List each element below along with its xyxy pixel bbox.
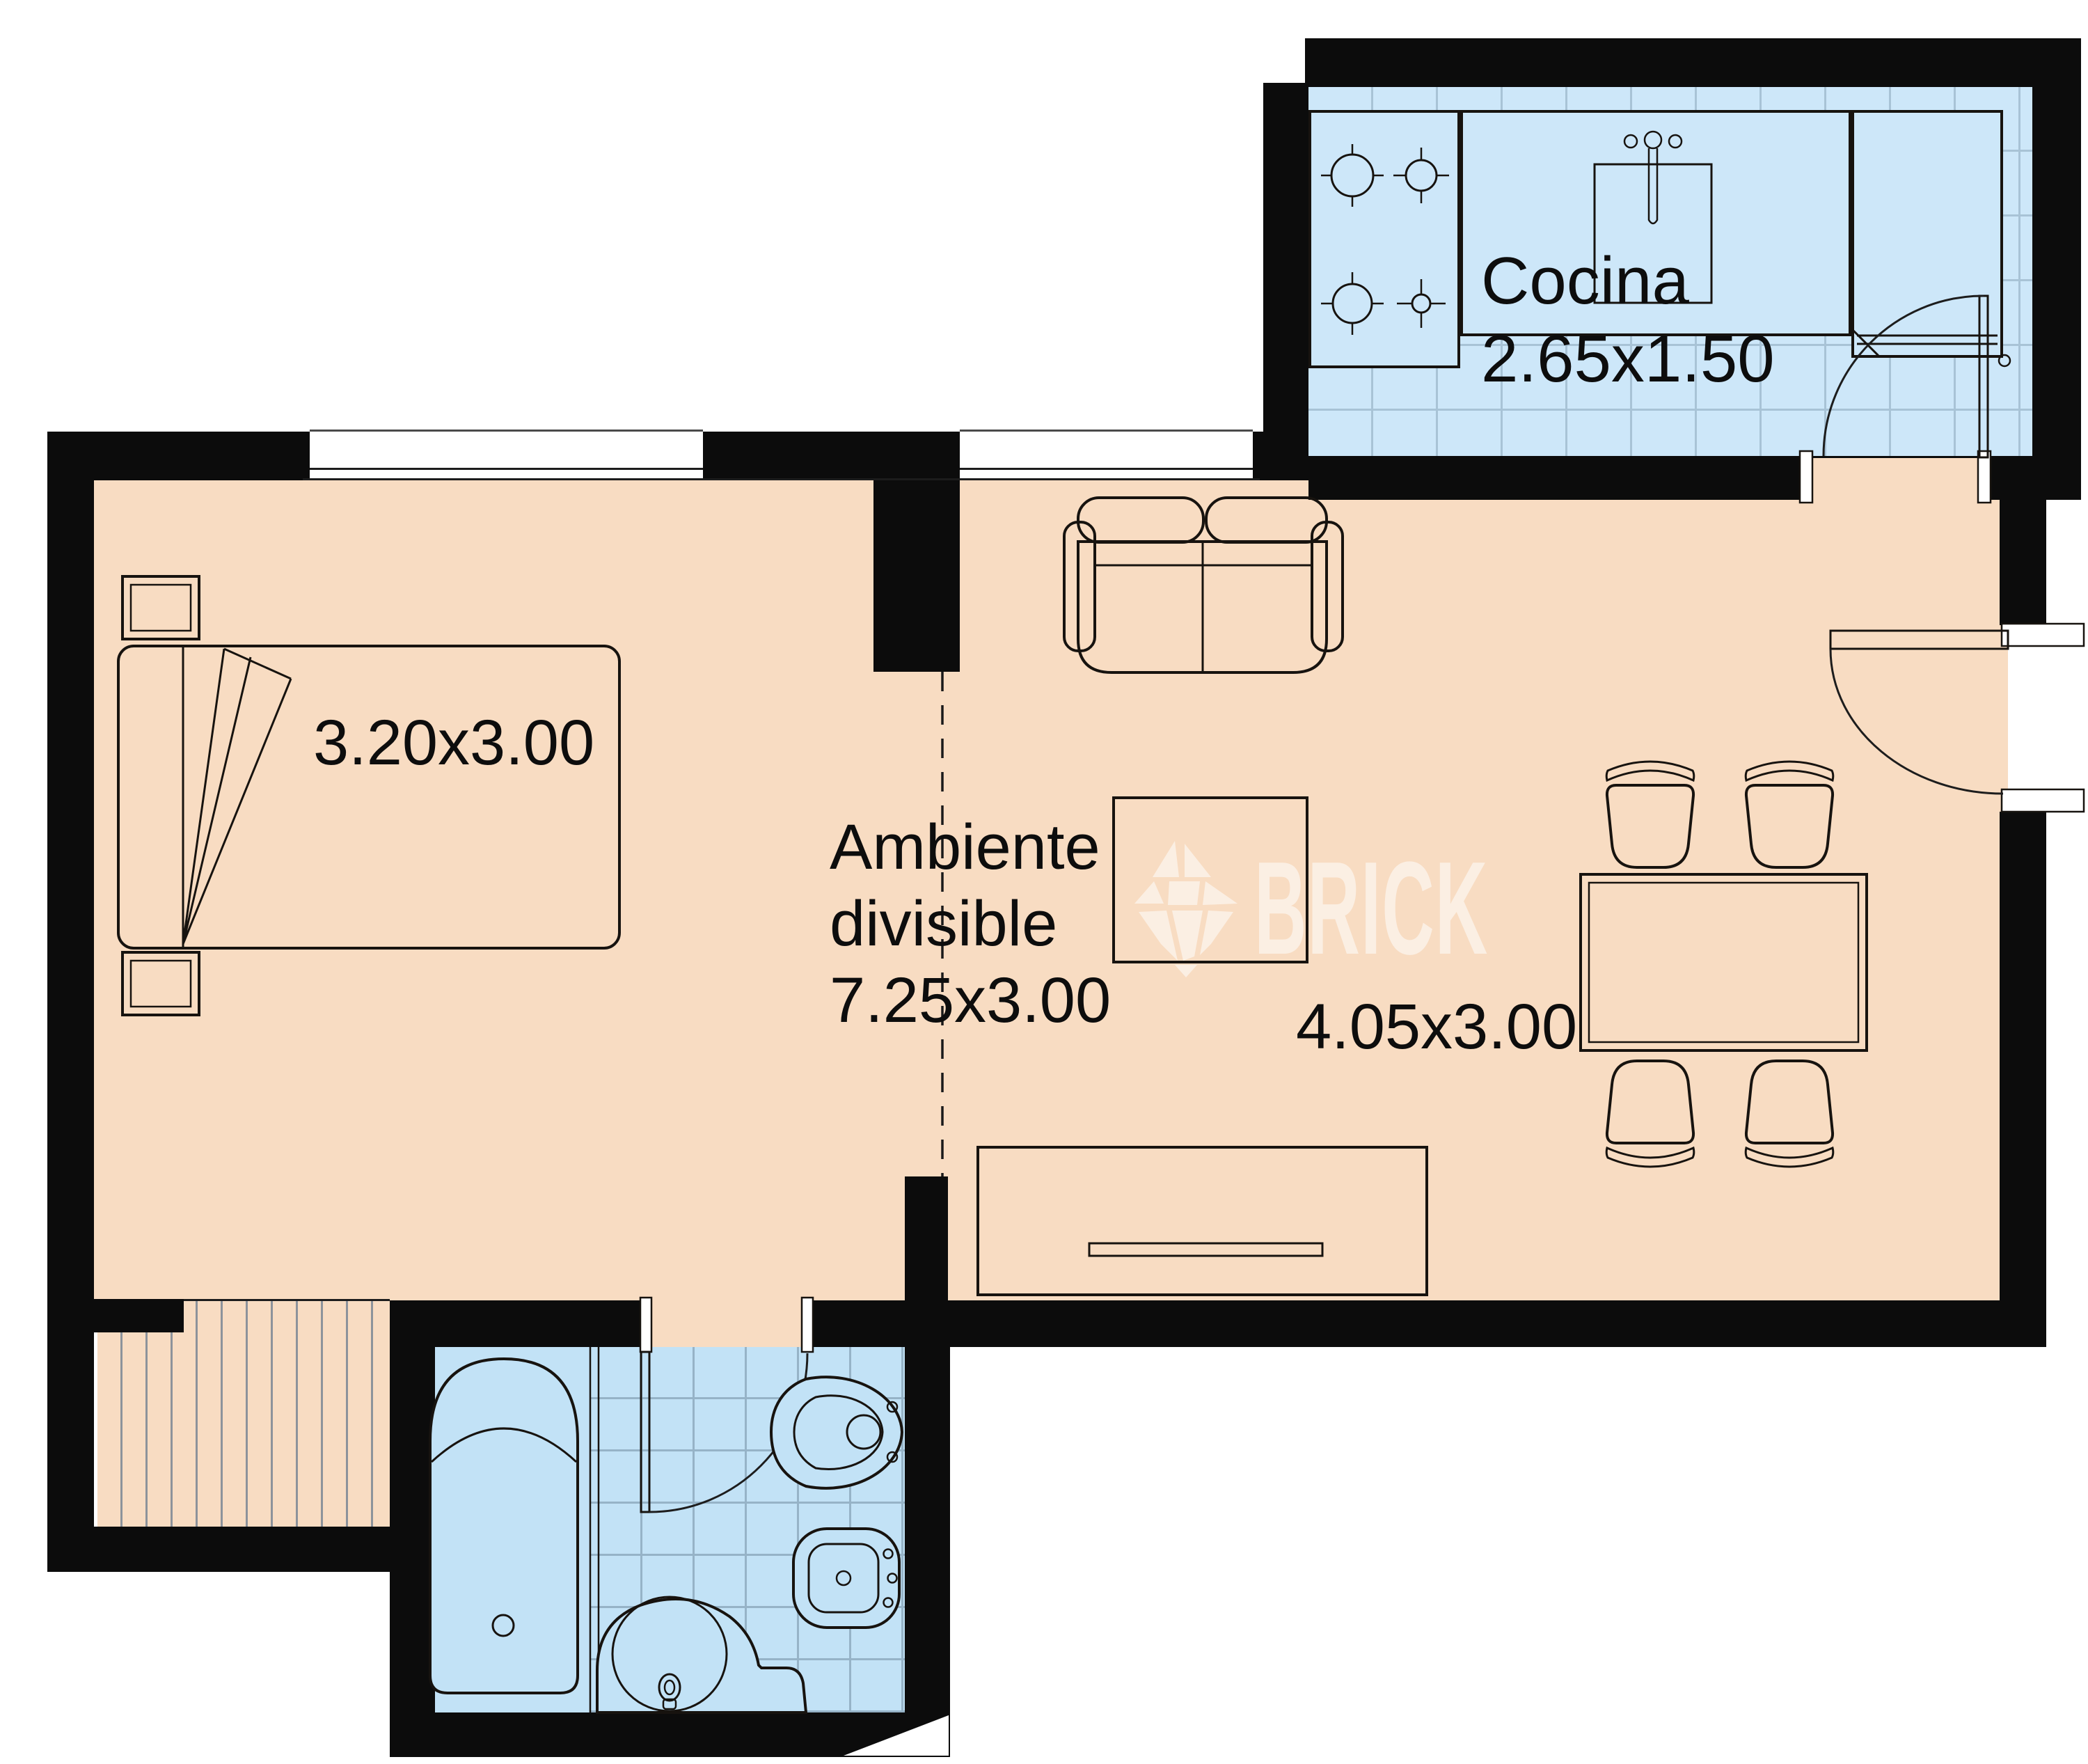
floor-plan: BRICK xyxy=(0,0,2088,1764)
wall-kitchen-left xyxy=(1263,38,1308,456)
room-label-kitchen: Cocina 2.65x1.50 xyxy=(1481,242,1775,398)
kitchen-dimensions: 2.65x1.50 xyxy=(1481,320,1775,398)
wall-stub-divider xyxy=(905,1176,948,1300)
wall-balcony-bottom xyxy=(47,1527,435,1572)
wall-pier-bedroom-living xyxy=(873,480,960,672)
room-label-living: 4.05x3.00 xyxy=(1296,989,1577,1065)
wall-right-upper xyxy=(2000,480,2046,625)
room-label-ambiente: Ambiente divisible 7.25x3.00 xyxy=(830,809,1111,1039)
ambiente-line-2: divisible xyxy=(830,885,1111,962)
wall-top-middle-pier xyxy=(703,432,960,480)
bathroom-door-floor xyxy=(647,1300,804,1347)
wall-notch xyxy=(1263,38,1305,83)
wall-bathroom-bottom xyxy=(390,1712,950,1757)
wall-bottom-main xyxy=(390,1300,2046,1347)
brick-gem-icon xyxy=(1133,840,1239,977)
floor-bathroom xyxy=(590,1347,905,1714)
wall-top-left xyxy=(47,432,310,480)
wall-right-lower xyxy=(2000,812,2046,1347)
window-living xyxy=(960,430,1253,470)
door-jamb xyxy=(2002,624,2084,646)
bedroom-dimensions: 3.20x3.00 xyxy=(313,704,594,781)
brick-watermark: BRICK xyxy=(1133,833,1680,984)
wall-kitchen-right xyxy=(2032,38,2081,500)
ambiente-dimensions: 7.25x3.00 xyxy=(830,962,1111,1039)
brick-wordmark: BRICK xyxy=(1254,833,1488,984)
floor-balcony xyxy=(97,1301,390,1527)
wall-kitchen-top xyxy=(1263,38,2081,87)
living-dimensions: 4.05x3.00 xyxy=(1296,989,1577,1065)
room-label-bedroom: 3.20x3.00 xyxy=(313,704,594,781)
wall-balcony-corner-block xyxy=(47,1299,184,1332)
wall-left-outer xyxy=(47,432,94,1572)
wall-inner-face-line xyxy=(303,478,1260,480)
door-jamb xyxy=(2002,789,2084,812)
kitchen-name: Cocina xyxy=(1481,242,1775,320)
floor-bathroom-tub-zone xyxy=(435,1347,590,1714)
window-bedroom xyxy=(310,430,703,470)
kitchen-passage-floor xyxy=(1813,458,1978,500)
ambiente-line-1: Ambiente xyxy=(830,809,1111,885)
wall-bathroom-left xyxy=(390,1300,435,1757)
wall-bathroom-right xyxy=(905,1300,950,1757)
